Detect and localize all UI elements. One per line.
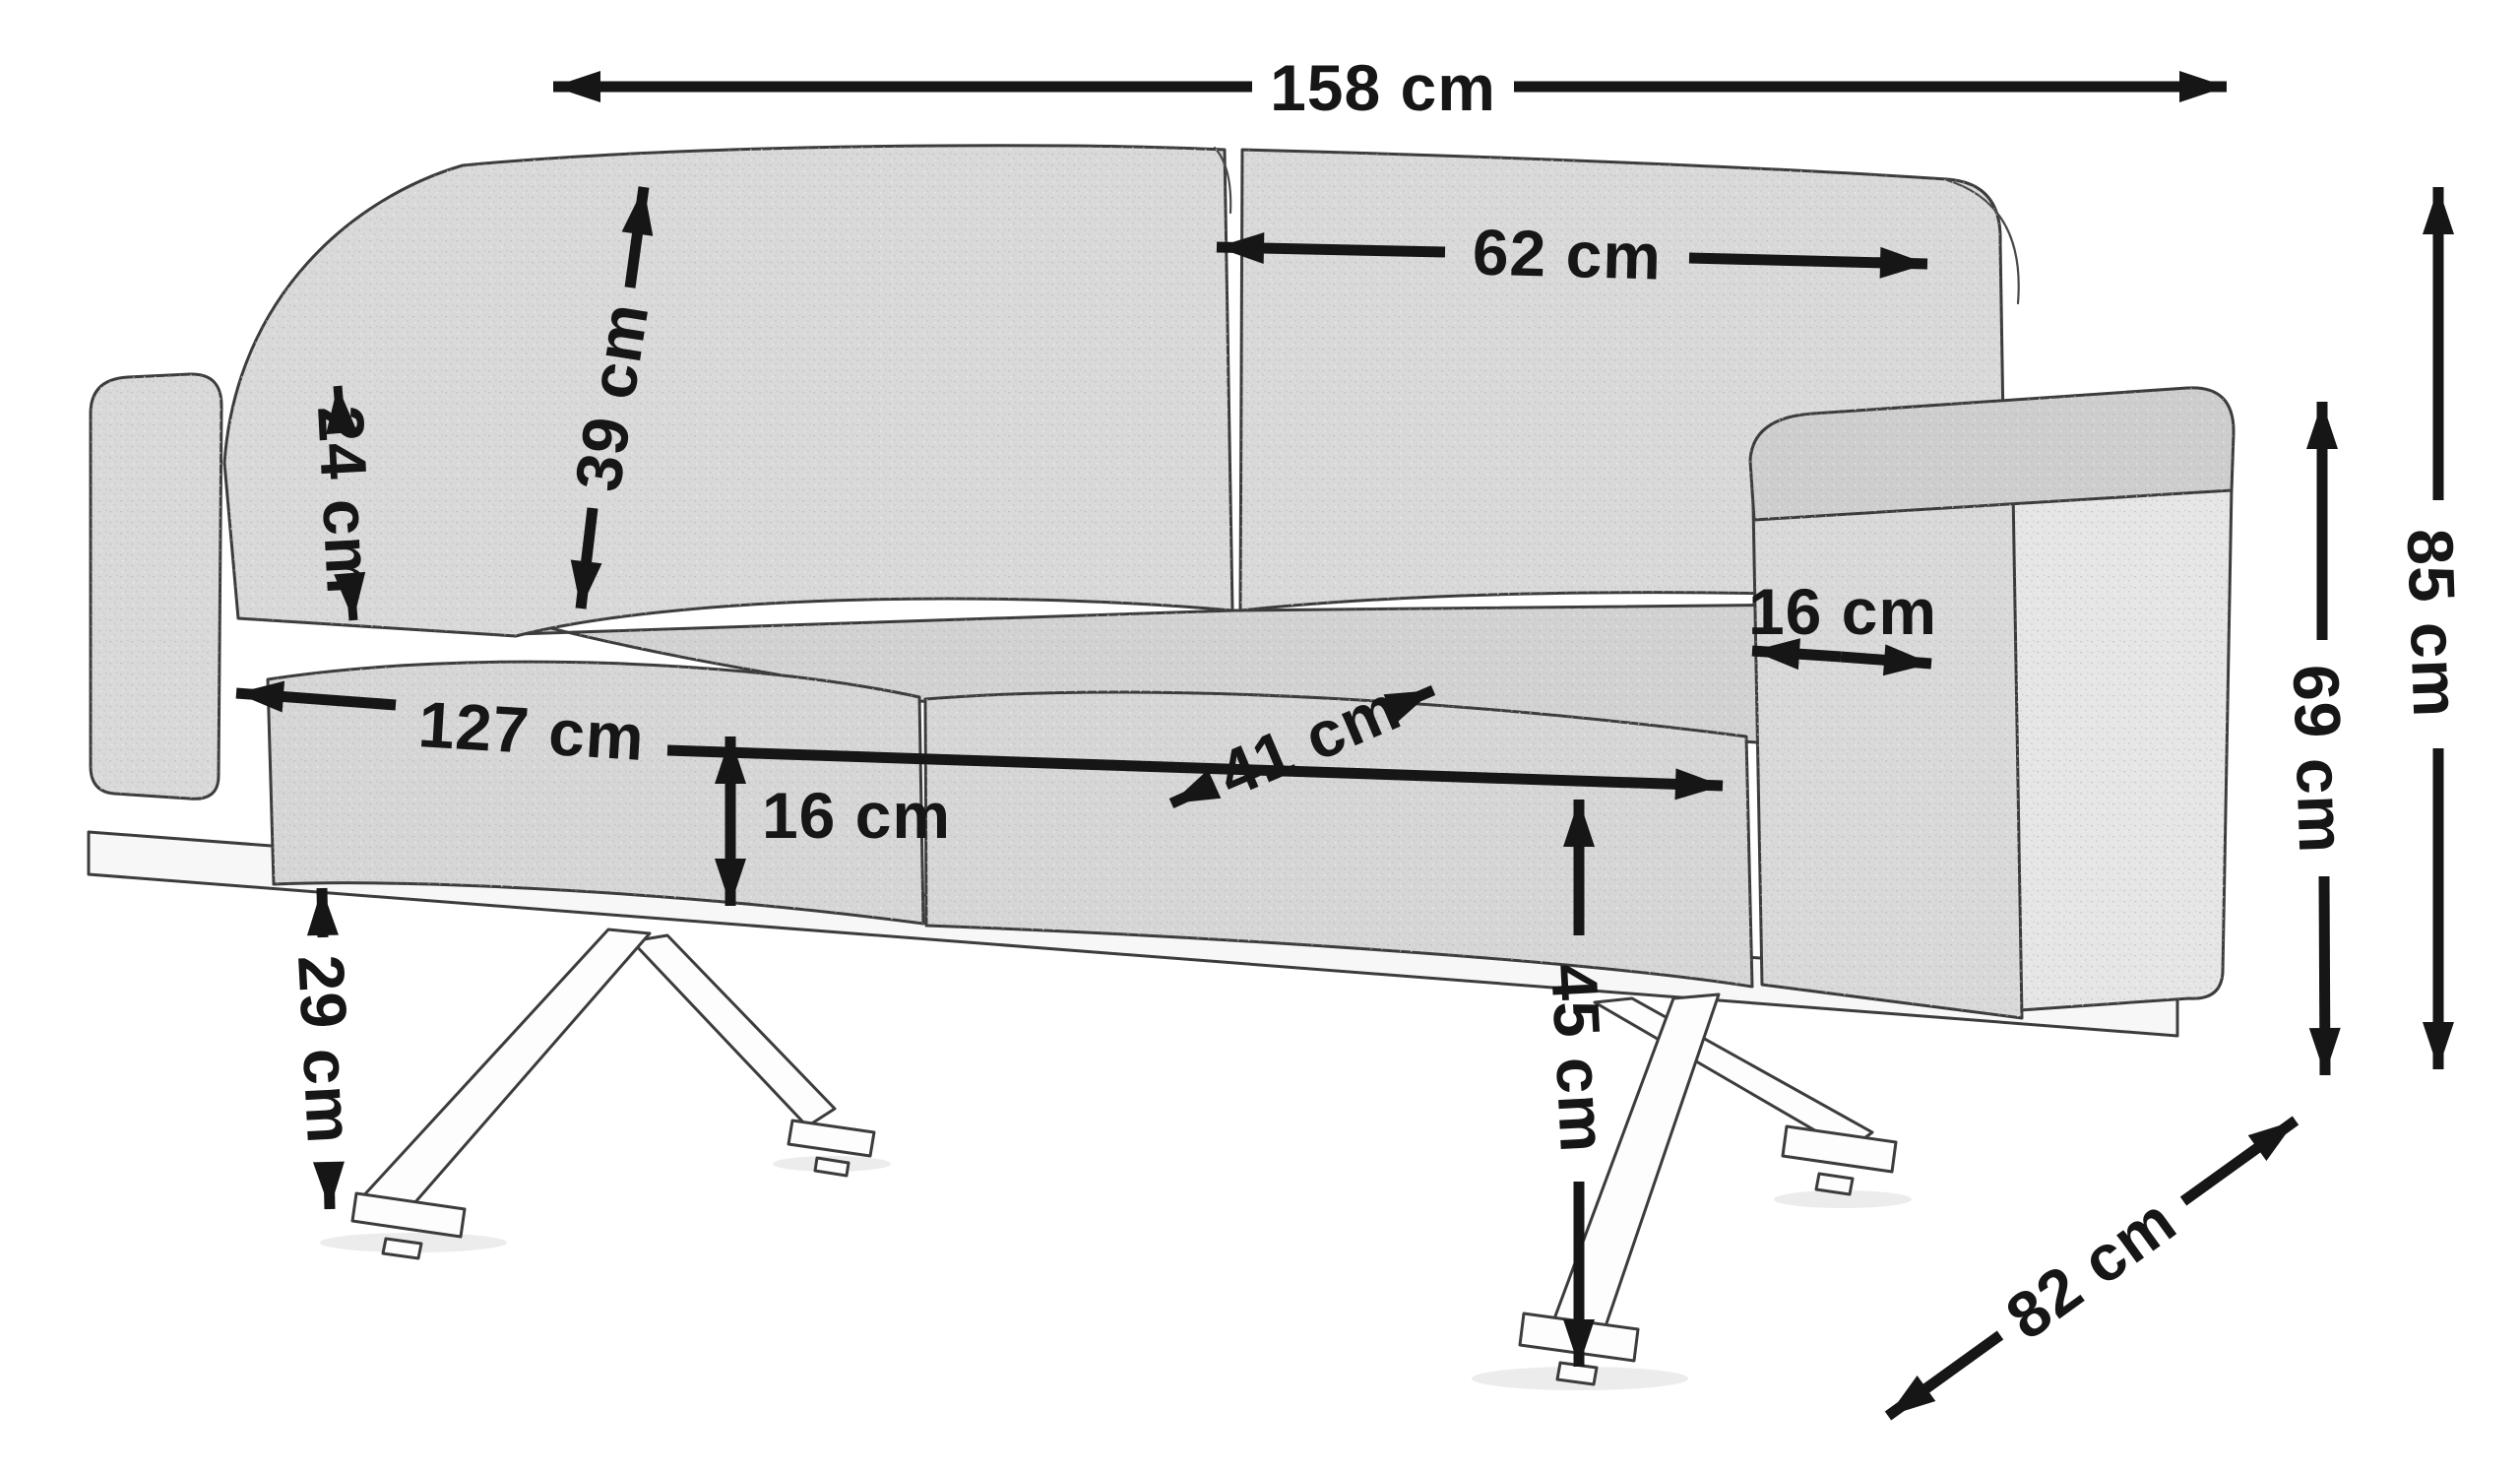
- leg-foot-pad: [1816, 1174, 1853, 1194]
- dimension-label-underframe-clearance: 29 cm: [284, 953, 367, 1146]
- dimension-armrest-top-depth: 24 cm: [304, 386, 387, 620]
- dimension-label-overall-height: 85 cm: [2394, 528, 2474, 720]
- leg-foot-pad: [383, 1239, 421, 1258]
- dimension-underframe-clearance: 29 cm: [284, 888, 367, 1209]
- leg: [632, 935, 835, 1126]
- leg-foot: [788, 1121, 874, 1156]
- dimension-label-overall-width: 158 cm: [1270, 51, 1496, 124]
- dimension-label-armrest-top-depth: 24 cm: [304, 404, 387, 597]
- diagram-canvas: 158 cm 62 cm 39 cm 24 cm 16 cm 127 cm 41…: [0, 0, 2520, 1473]
- sofa-illustration: [59, 128, 2254, 1390]
- dimension-overall-height: 85 cm: [2394, 187, 2474, 1069]
- leg: [360, 929, 650, 1211]
- dimension-overall-depth: 82 cm: [1888, 1121, 2296, 1416]
- leg-foot-pad: [815, 1158, 849, 1176]
- dimension-label-back-cushion-width: 62 cm: [1472, 215, 1663, 292]
- dimension-label-seat-width: 127 cm: [416, 687, 647, 774]
- left-leg-frame: [352, 929, 874, 1258]
- leg-foot: [1783, 1126, 1896, 1172]
- dimension-label-seat-height: 45 cm: [1538, 962, 1620, 1155]
- dimension-label-armrest-width: 16 cm: [1748, 575, 1937, 648]
- dimension-overall-width: 158 cm: [553, 51, 2227, 124]
- dimension-label-armrest-height: 69 cm: [2280, 664, 2360, 856]
- dimension-armrest-height: 69 cm: [2280, 402, 2360, 1075]
- sofa-dimension-diagram: 158 cm 62 cm 39 cm 24 cm 16 cm 127 cm 41…: [0, 0, 2520, 1473]
- leg-foot: [352, 1193, 465, 1237]
- dimension-label-overall-depth: 82 cm: [1993, 1184, 2189, 1354]
- dimension-label-seat-cushion-thickness: 16 cm: [762, 779, 951, 852]
